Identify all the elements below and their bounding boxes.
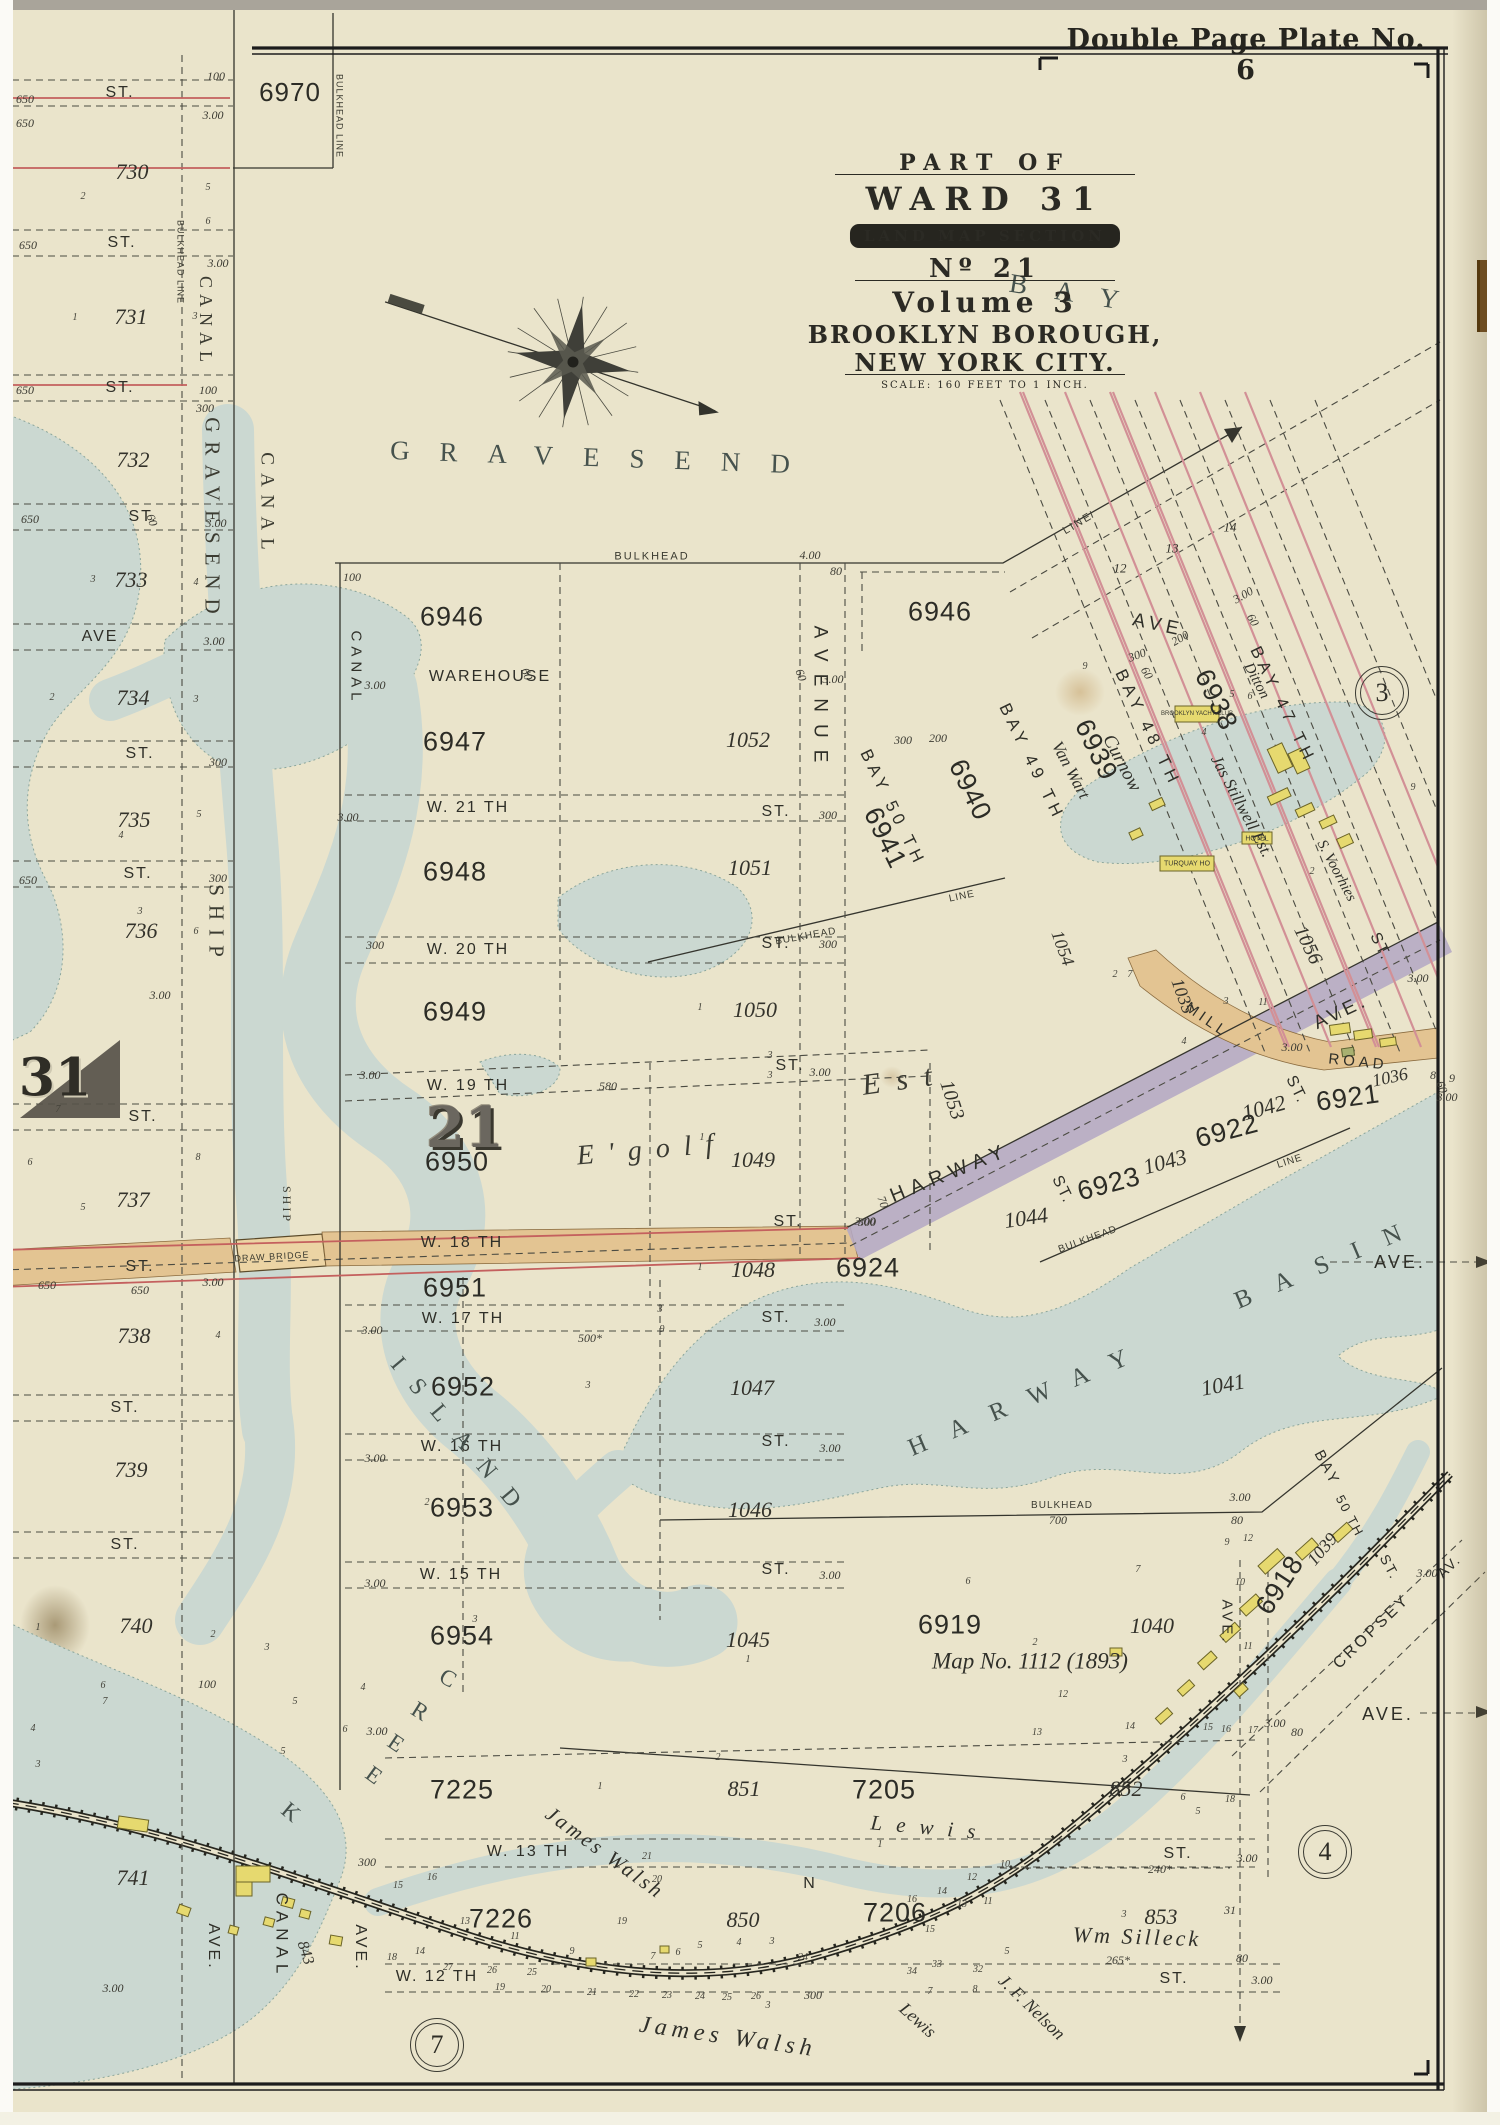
map-label: 80: [1291, 1726, 1303, 1738]
map-label: 300: [209, 872, 227, 884]
ward-badge-31: 31: [19, 1048, 91, 1109]
map-label: 14: [1224, 521, 1237, 534]
map-label: ST.: [107, 235, 136, 251]
map-label: 100: [207, 70, 225, 82]
map-label: 4: [194, 578, 199, 588]
map-label: 13: [460, 1917, 470, 1927]
map-label: 4: [361, 1683, 366, 1693]
map-label: 650: [131, 1284, 149, 1296]
map-label: 3: [770, 1937, 775, 1947]
map-label: 6: [194, 927, 199, 937]
map-label: 10: [1235, 1578, 1245, 1588]
map-label: 5: [281, 1747, 286, 1757]
map-label: 3.00: [1417, 1567, 1438, 1579]
map-label: 6951: [423, 1275, 487, 1302]
map-label: 6952: [431, 1374, 495, 1401]
map-label: 1: [878, 1840, 883, 1850]
map-label: 6919: [918, 1612, 982, 1639]
map-label: 7: [1136, 1565, 1141, 1575]
map-label: 100: [199, 384, 217, 396]
map-label: 2: [81, 192, 86, 202]
map-label: 100: [343, 571, 361, 583]
map-label: 3.00: [815, 1316, 836, 1328]
map-label: 15: [925, 1925, 935, 1935]
map-label: 731: [115, 306, 148, 328]
map-graphics: [0, 0, 1500, 2125]
plate-reference-circle: 7: [410, 2018, 464, 2072]
map-label: 650: [38, 1279, 56, 1291]
plate-reference-circle: 4: [1298, 1825, 1352, 1879]
map-label: W. 15 TH: [420, 1567, 502, 1583]
map-label: 6: [343, 1725, 348, 1735]
map-label: 2: [1310, 867, 1315, 877]
map-label: 741: [117, 1867, 150, 1889]
map-label: 12: [1243, 1534, 1253, 1544]
map-label: 2: [1033, 1638, 1038, 1648]
map-label: 25: [527, 1968, 537, 1978]
map-label: 18: [1225, 1795, 1235, 1805]
map-label: 300: [858, 1216, 876, 1228]
map-label: 3: [1122, 1910, 1127, 1920]
map-label: 27: [443, 1963, 453, 1973]
map-label: 740: [120, 1615, 153, 1637]
map-label: W. 13 TH: [487, 1844, 569, 1860]
map-label: 80: [1231, 1514, 1243, 1526]
map-label: 3.00: [150, 989, 171, 1001]
map-label: 12: [1058, 1690, 1068, 1700]
map-label: ST.: [125, 746, 154, 762]
map-label: 12: [967, 1873, 977, 1883]
plate-reference-number: 4: [1299, 1826, 1351, 1878]
map-label: 17: [1248, 1726, 1258, 1736]
map-label: 7205: [852, 1777, 916, 1804]
map-label: BULKHEAD: [614, 552, 689, 563]
map-label: 1048: [731, 1259, 775, 1281]
map-label: AVE.: [205, 1923, 221, 1970]
map-label: 80: [830, 565, 842, 577]
map-label: 300: [894, 734, 912, 746]
map-label: 6: [206, 217, 211, 227]
map-label: 9: [1411, 783, 1416, 793]
map-label: ST.: [773, 1214, 802, 1230]
map-label: ST.: [125, 1259, 154, 1275]
map-label: 5: [293, 1697, 298, 1707]
map-label: 10: [1000, 1860, 1010, 1870]
map-label: 8: [196, 1153, 201, 1163]
map-label: 3: [138, 907, 143, 917]
map-label: 650: [16, 93, 34, 105]
map-label: 11: [1258, 998, 1267, 1008]
map-label: 300: [804, 1989, 822, 2001]
map-label: N: [803, 1876, 817, 1892]
map-label: 5: [206, 183, 211, 193]
map-label: ST.: [1159, 1971, 1188, 1987]
map-label: 300: [819, 809, 837, 821]
map-label: 7225: [430, 1777, 494, 1804]
map-label: 6: [1248, 692, 1253, 702]
map-label: 2: [211, 1630, 216, 1640]
map-label: 15: [1203, 1723, 1213, 1733]
map-label: 739: [115, 1459, 148, 1481]
plate-reference-number: 3: [1356, 667, 1408, 719]
map-label: AVENUE: [811, 626, 830, 775]
map-label: 265*: [1106, 1954, 1130, 1966]
map-label: 1049: [731, 1149, 775, 1171]
map-label: 3.00: [203, 1276, 224, 1288]
map-label: 9: [570, 1947, 575, 1957]
map-label: 13: [957, 1900, 967, 1910]
map-label: Wm Silleck: [1072, 1924, 1201, 1950]
map-label: SHIP: [281, 1186, 293, 1224]
cartouche-city: NEW YORK CITY.: [854, 348, 1115, 377]
map-label: 16: [427, 1873, 437, 1883]
map-label: ST.: [128, 1109, 157, 1125]
map-label: 7: [928, 1987, 933, 1997]
map-label: 300: [196, 402, 214, 414]
map-label: 1050: [733, 999, 777, 1021]
map-label: 3.00: [103, 1982, 124, 1994]
map-label: 6: [676, 1948, 681, 1958]
map-label: 240*: [1148, 1863, 1172, 1875]
map-label: 2: [50, 693, 55, 703]
map-label: 26: [751, 1992, 761, 2002]
map-label: AVE.: [1362, 1705, 1414, 1723]
map-label: 34: [907, 1967, 917, 1977]
map-label: 1: [698, 1003, 703, 1013]
map-label: 3: [768, 1051, 773, 1061]
map-label: ST.: [1163, 1846, 1192, 1862]
map-label: Map No. 1112 (1893): [932, 1650, 1128, 1673]
map-label: 13: [1166, 542, 1179, 555]
cartouche-scale: SCALE: 160 FEET TO 1 INCH.: [881, 380, 1089, 391]
map-label: 26: [487, 1966, 497, 1976]
map-label: BULKHEAD LINE: [335, 74, 344, 158]
map-label: 1: [700, 1133, 705, 1143]
map-label: 14: [1125, 1722, 1135, 1732]
map-label: 100: [198, 1678, 216, 1690]
map-label: 732: [117, 449, 150, 471]
map-label: 80: [1236, 1952, 1248, 1964]
cartouche-part-of: PART OF: [899, 150, 1071, 176]
map-label: 300: [819, 938, 837, 950]
map-label: ST.: [110, 1537, 139, 1553]
map-label: 3.00: [362, 1324, 383, 1336]
map-label: TURQUAY HO: [1164, 861, 1210, 868]
scan-edge-top: [0, 0, 1500, 10]
map-label: ST.: [761, 1562, 790, 1578]
map-label: 853: [1145, 1906, 1178, 1928]
map-label: CANAL: [258, 452, 277, 557]
map-label: 3.00: [1252, 1974, 1273, 1986]
map-label: 32: [973, 1965, 983, 1975]
map-label: 300: [366, 939, 384, 951]
map-label: 5: [197, 810, 202, 820]
map-label: AVE.: [1220, 1599, 1235, 1644]
map-label: 3: [586, 1381, 591, 1391]
map-label: W. 17 TH: [422, 1311, 504, 1327]
map-label: 3.00: [338, 811, 359, 823]
map-label: 6953: [430, 1495, 494, 1522]
map-label: 650: [16, 384, 34, 396]
map-label: 7: [1128, 970, 1133, 980]
map-label: 24: [798, 1953, 808, 1963]
map-label: BULKHEAD: [1031, 1501, 1093, 1511]
map-label: 6924: [836, 1255, 900, 1282]
map-label: 23: [662, 1991, 672, 2001]
map-label: 6946: [908, 599, 972, 626]
map-label: 3.00: [810, 1066, 831, 1078]
map-label: ST.: [123, 866, 152, 882]
map-label: ST.: [105, 85, 134, 101]
map-label: 16: [907, 1895, 917, 1905]
map-label: 3: [473, 1615, 478, 1625]
cartouche-rule: [855, 280, 1115, 281]
map-label: 1047: [730, 1377, 774, 1399]
map-label: W. 21 TH: [427, 800, 509, 816]
map-label: 650: [16, 117, 34, 129]
map-label: 1: [73, 313, 78, 323]
map-label: 3.00: [1265, 1717, 1286, 1729]
map-label: 9: [1083, 662, 1088, 672]
map-label: 650: [19, 239, 37, 251]
map-label: 2: [1113, 970, 1118, 980]
map-label: 1: [698, 1263, 703, 1273]
map-label: 738: [118, 1325, 151, 1347]
map-label: 1: [36, 1623, 41, 1633]
map-label: 5: [1196, 1807, 1201, 1817]
cartouche-volume: Volume 3: [892, 286, 1078, 319]
map-label: SHIP: [206, 884, 227, 966]
map-label: 700: [1049, 1514, 1067, 1526]
map-label: 5: [81, 1203, 86, 1213]
map-label: 13: [1032, 1728, 1042, 1738]
map-label: 1: [746, 1655, 751, 1665]
map-label: 6: [966, 1577, 971, 1587]
map-label: 3: [91, 575, 96, 585]
map-label: 3.00: [1237, 1852, 1258, 1864]
map-label: 9: [660, 1325, 665, 1335]
map-label: 3.00: [360, 1069, 381, 1081]
map-label: 1046: [728, 1499, 772, 1521]
map-label: 3.00: [1230, 1491, 1251, 1503]
map-label: 20: [541, 1985, 551, 1995]
cartouche-rule: [835, 174, 1135, 175]
map-label: 5: [698, 1941, 703, 1951]
map-label: 31: [1224, 1904, 1236, 1916]
map-label: 6970: [259, 79, 321, 105]
scan-edge-bottom: [0, 2112, 1500, 2125]
map-label: 3.00: [206, 517, 227, 529]
map-label: 25: [722, 1993, 732, 2003]
map-label: 3: [36, 1760, 41, 1770]
map-label: 650: [21, 513, 39, 525]
map-label: 22: [629, 1990, 639, 2000]
map-label: 3.00: [823, 673, 844, 685]
map-label: 21: [587, 1988, 597, 1998]
map-label: 3: [265, 1643, 270, 1653]
map-label: 3.00: [203, 109, 224, 121]
map-label: 3: [193, 312, 198, 322]
map-label: ST.: [761, 804, 790, 820]
map-label: 1: [598, 1782, 603, 1792]
map-label: 3.00: [365, 1452, 386, 1464]
map-label: W. 20 TH: [427, 942, 509, 958]
map-label: ST.: [110, 1400, 139, 1416]
map-label: 300: [358, 1856, 376, 1868]
map-label: ST.: [775, 1058, 804, 1074]
map-label: W. 12 TH: [396, 1969, 478, 1985]
map-label: 200: [929, 732, 947, 744]
map-label: 1052: [726, 729, 770, 751]
map-label: 4: [31, 1724, 36, 1734]
map-label: 12: [1114, 562, 1127, 575]
cartouche-ward: WARD 31: [866, 180, 1105, 218]
map-label: 7: [103, 1697, 108, 1707]
map-label: 1040: [1130, 1615, 1174, 1637]
map-label: 6: [28, 1158, 33, 1168]
map-label: 4: [1182, 1037, 1187, 1047]
map-label: 8: [973, 1985, 978, 1995]
map-label: 3.00: [367, 1725, 388, 1737]
map-label: 1045: [726, 1629, 770, 1651]
map-label: 850: [727, 1909, 760, 1931]
map-label: 733: [115, 569, 148, 591]
map-label: 851: [728, 1778, 761, 1800]
map-label: 730: [116, 161, 149, 183]
map-label: 3.00: [1282, 1041, 1303, 1053]
map-label: 7206: [863, 1900, 927, 1927]
map-label: 3: [768, 1071, 773, 1081]
map-label: 735: [118, 809, 151, 831]
map-label: 3.00: [204, 635, 225, 647]
map-label: 6947: [423, 729, 487, 756]
map-label: CANAL: [349, 630, 364, 705]
map-label: W. 19 TH: [427, 1078, 509, 1094]
map-label: 21: [642, 1852, 652, 1862]
map-label: 19: [495, 1983, 505, 1993]
map-label: 5: [1005, 1947, 1010, 1957]
scan-edge-right: [1487, 0, 1500, 2125]
compass-rose: [370, 266, 733, 451]
map-label: 3: [1224, 997, 1229, 1007]
map-label: 6949: [423, 999, 487, 1026]
map-label: ST.: [761, 1310, 790, 1326]
cartouche-borough: BROOKLYN BOROUGH,: [808, 320, 1163, 349]
map-label: 1044: [1003, 1204, 1050, 1232]
map-label: 16: [1221, 1725, 1231, 1735]
map-label: 3.00: [365, 679, 386, 691]
map-label: 15: [393, 1881, 403, 1891]
cartouche-land-map-section-banner: LAND MAP SECTION: [850, 224, 1120, 248]
map-label: AVE.: [1374, 1253, 1426, 1271]
plate-reference-number: 7: [411, 2019, 463, 2071]
scan-edge-left: [0, 0, 13, 2125]
map-label: W. 18 TH: [421, 1235, 503, 1251]
map-label: 3: [194, 695, 199, 705]
map-label: 736: [125, 920, 158, 942]
map-label: 3.00: [820, 1569, 841, 1581]
atlas-page: WAREHOUSEW. 21 THST.W. 20 THST.W. 19 THS…: [0, 0, 1500, 2125]
map-label: 14: [937, 1887, 947, 1897]
map-label: ST.: [761, 1434, 790, 1450]
map-label: AVE: [82, 629, 119, 645]
map-label: 2: [425, 1498, 430, 1508]
map-label: 4: [1202, 728, 1207, 738]
map-label: 14: [415, 1947, 425, 1957]
map-label: 6954: [430, 1623, 494, 1650]
map-label: 8: [1430, 1069, 1436, 1081]
map-label: 852: [1110, 1778, 1143, 1800]
map-label: 11: [1243, 1642, 1252, 1652]
map-label: 24: [695, 1992, 705, 2002]
map-label: 19: [617, 1917, 627, 1927]
map-label: 3: [1123, 1755, 1128, 1765]
map-label: 4: [737, 1938, 742, 1948]
map-label: 3.00: [820, 1442, 841, 1454]
map-label: 6946: [420, 604, 484, 631]
map-label: 7: [651, 1952, 656, 1962]
map-label: 737: [117, 1189, 150, 1211]
map-label: 4: [119, 831, 124, 841]
map-label: 6: [101, 1681, 106, 1691]
map-label: 300: [209, 756, 227, 768]
map-label: 20: [652, 1875, 662, 1885]
map-label: 734: [117, 687, 150, 709]
map-label: ST.: [105, 380, 134, 396]
map-label: CANAL: [274, 1893, 291, 1980]
section-badge-21: 21: [426, 1095, 504, 1161]
map-label: 6: [1181, 1793, 1186, 1803]
map-label: 3.00: [208, 257, 229, 269]
map-label: 650: [19, 874, 37, 886]
map-label: 9: [1225, 1538, 1230, 1548]
map-label: 3.00: [365, 1577, 386, 1589]
map-label: 11: [983, 1897, 992, 1907]
map-label: 6948: [423, 859, 487, 886]
map-label: 18: [387, 1953, 397, 1963]
map-label: AVE.: [352, 1924, 368, 1971]
map-label: 3: [658, 1305, 663, 1315]
map-label: 580: [599, 1080, 617, 1092]
map-label: 11: [510, 1932, 519, 1942]
map-label: 5: [1230, 690, 1235, 700]
map-label: 2: [716, 1753, 721, 1763]
map-label: 3.00: [1408, 972, 1429, 984]
map-label: 4.00: [800, 549, 821, 561]
map-label: 4: [216, 1331, 221, 1341]
map-label: 7226: [469, 1906, 533, 1933]
cartouche-rule: [845, 374, 1125, 375]
map-label: 500*: [578, 1332, 602, 1344]
map-label: 33: [932, 1960, 942, 1970]
map-label: CANAL: [197, 276, 215, 368]
map-label: BULKHEAD LINE: [176, 220, 185, 304]
plate-number-title: Double Page Plate No. 6: [1060, 24, 1432, 86]
map-label: 3: [766, 2001, 771, 2011]
plate-reference-circle: 3: [1355, 666, 1409, 720]
map-label: 1051: [728, 857, 772, 879]
